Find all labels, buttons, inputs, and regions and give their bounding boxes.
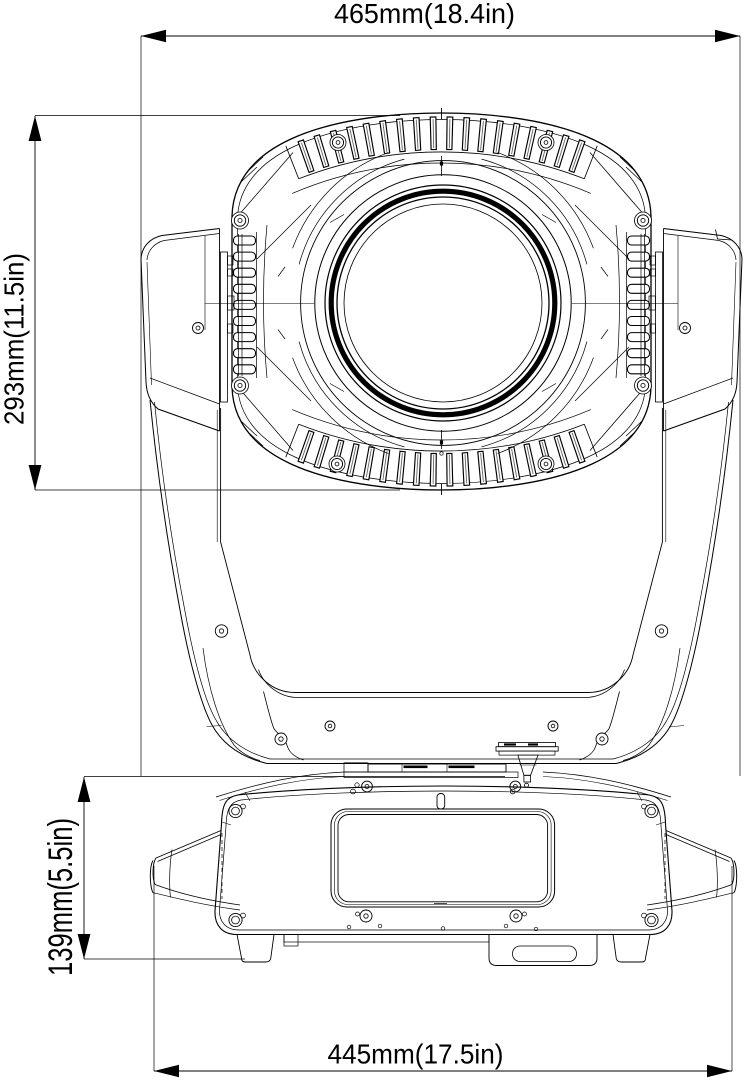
svg-text:445mm(17.5in): 445mm(17.5in) xyxy=(328,1039,504,1070)
svg-text:465mm(18.4in): 465mm(18.4in) xyxy=(334,0,515,29)
svg-text:293mm(11.5in): 293mm(11.5in) xyxy=(0,253,30,425)
svg-text:139mm(5.5in): 139mm(5.5in) xyxy=(42,818,80,976)
